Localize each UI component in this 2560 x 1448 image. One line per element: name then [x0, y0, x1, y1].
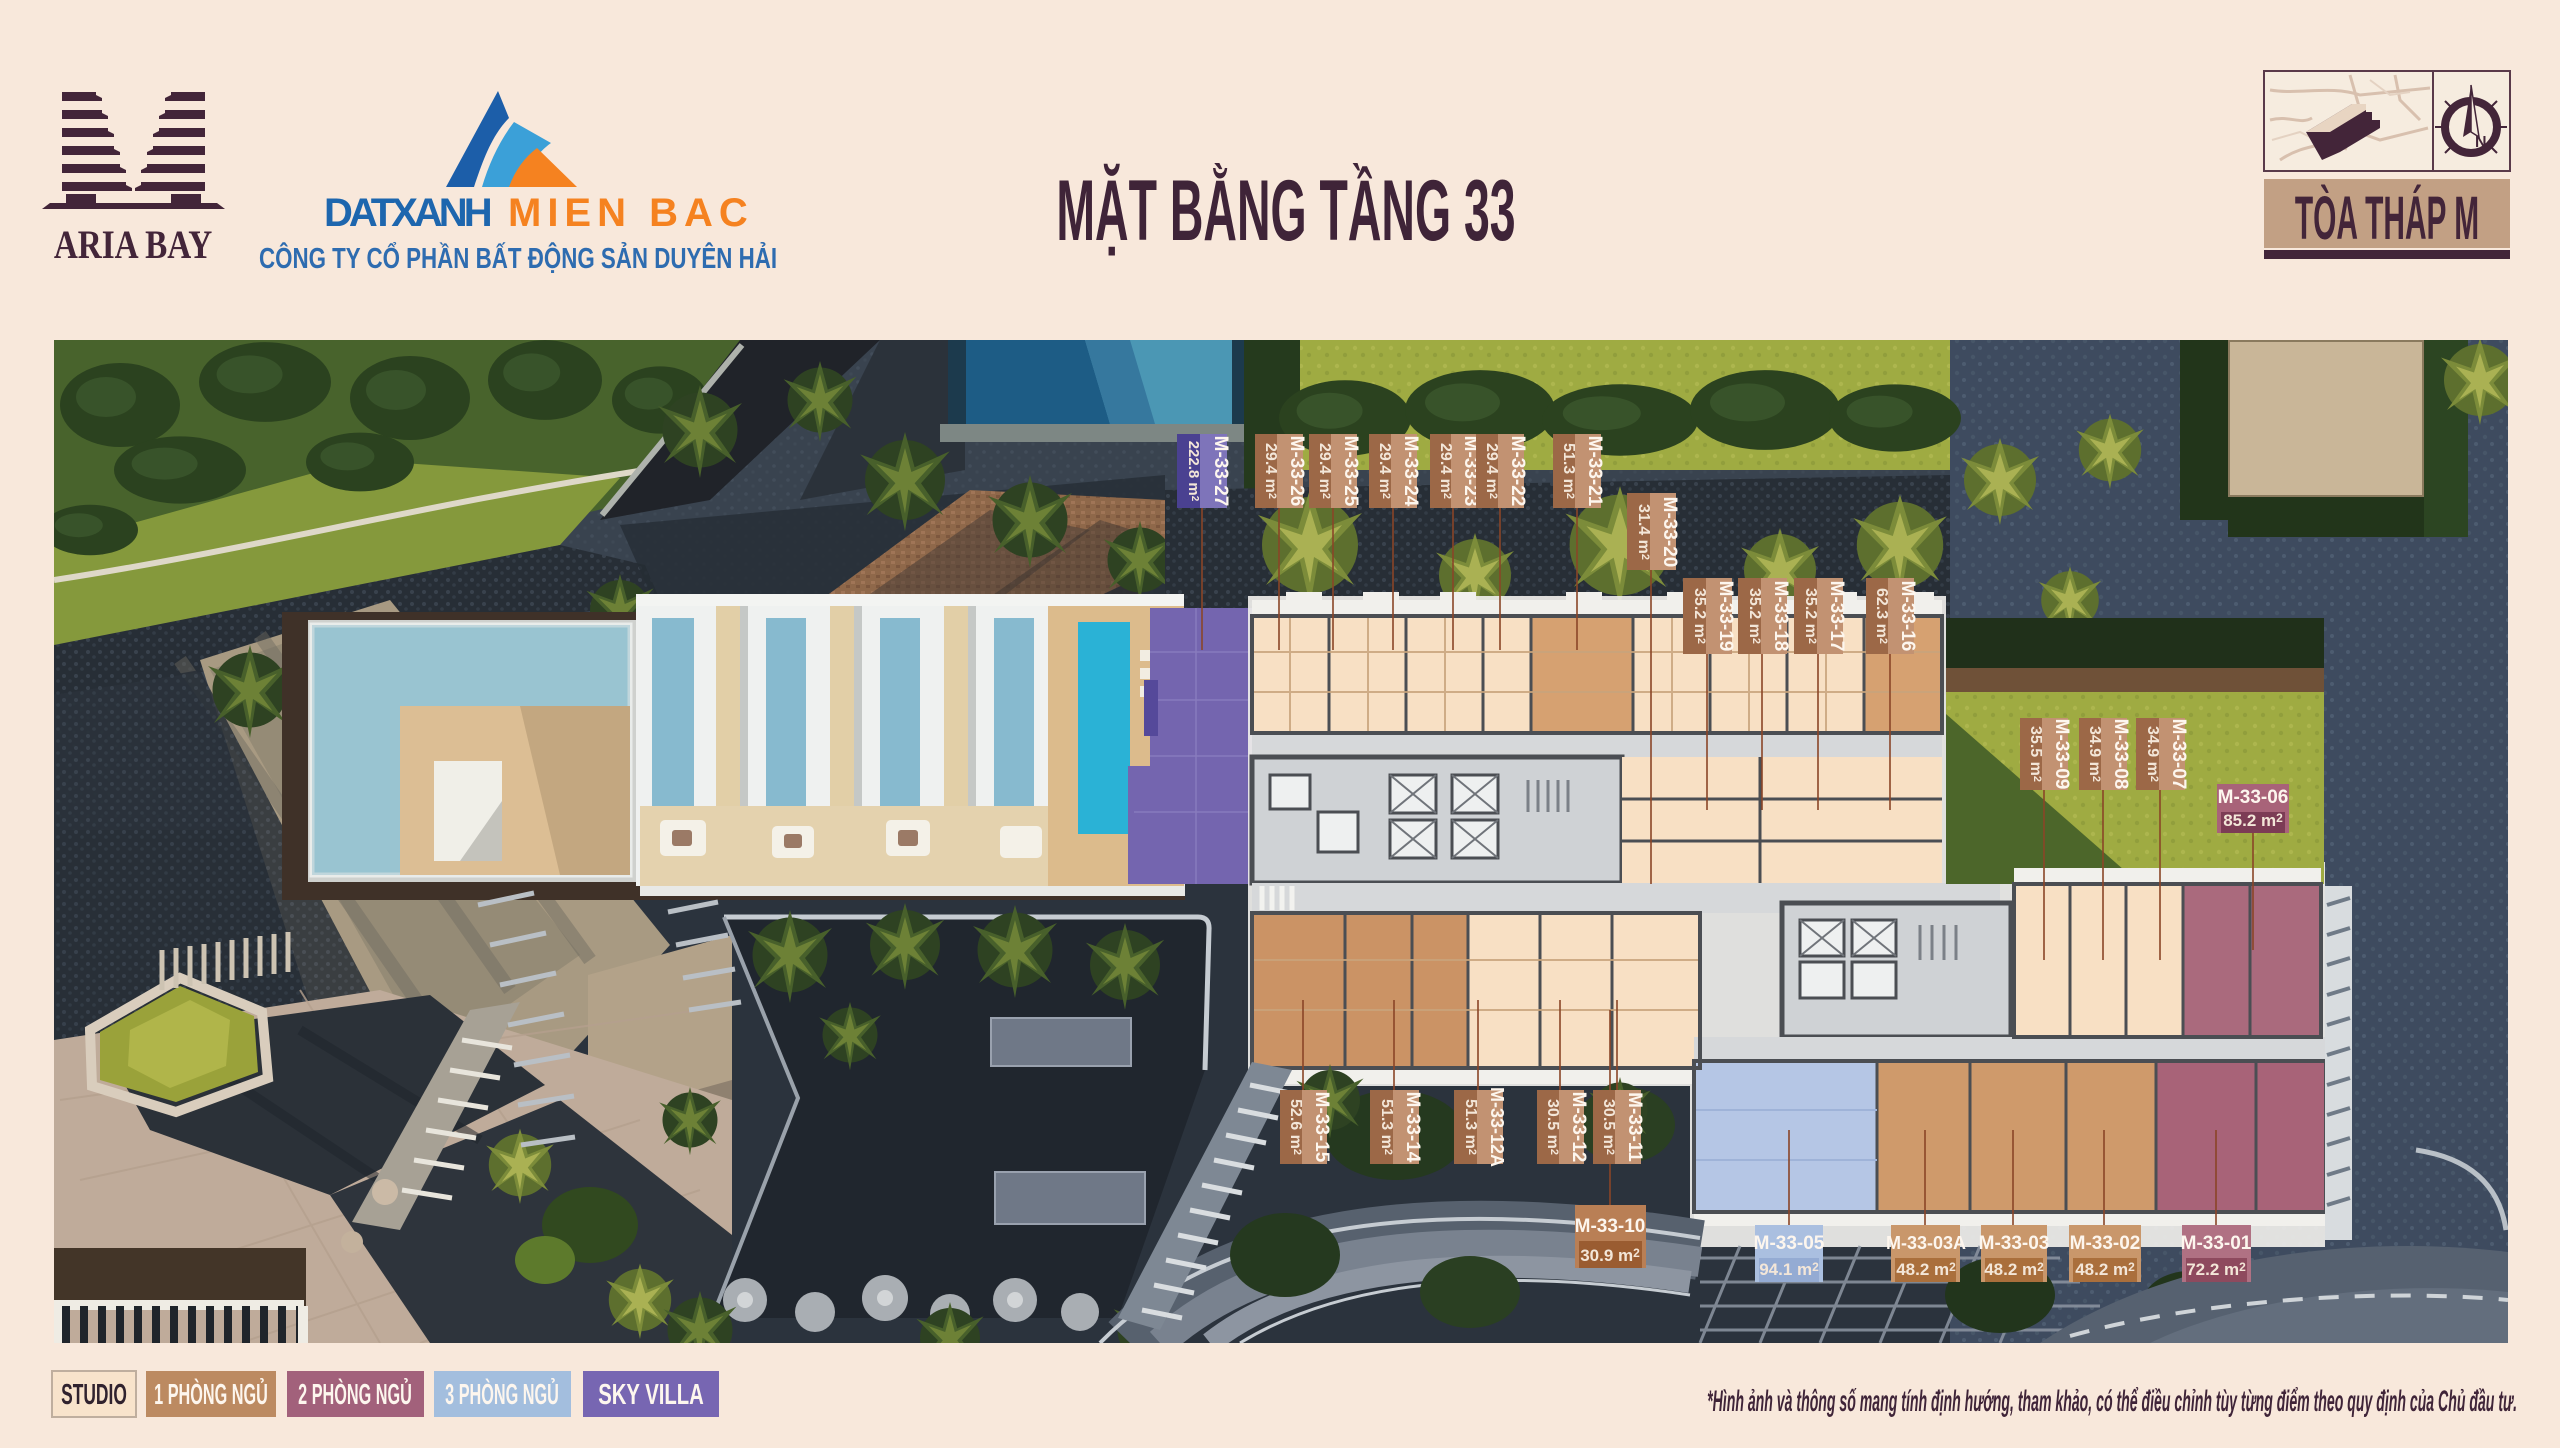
svg-text:TÒA THÁP M: TÒA THÁP M	[2295, 183, 2479, 253]
svg-text:85.2 m2: 85.2 m2	[2223, 811, 2283, 830]
svg-text:1 PHÒNG NGỦ: 1 PHÒNG NGỦ	[154, 1376, 268, 1411]
svg-text:DATXANH: DATXANH	[324, 191, 491, 235]
svg-text:51.3 m2: 51.3 m2	[1462, 1099, 1479, 1155]
svg-text:2 PHÒNG NGỦ: 2 PHÒNG NGỦ	[298, 1376, 412, 1411]
svg-text:M-33-14: M-33-14	[1402, 1092, 1423, 1163]
svg-text:34.9 m2: 34.9 m2	[2144, 726, 2161, 782]
svg-text:M-33-05: M-33-05	[1754, 1233, 1825, 1254]
svg-text:M-33-26: M-33-26	[1286, 436, 1307, 507]
svg-text:M-33-27: M-33-27	[1210, 436, 1231, 507]
svg-text:51.3 m2: 51.3 m2	[1378, 1099, 1395, 1155]
svg-text:48.2 m2: 48.2 m2	[2075, 1260, 2135, 1279]
svg-text:M-33-21: M-33-21	[1584, 436, 1605, 507]
svg-text:ARIA BAY: ARIA BAY	[54, 222, 212, 267]
svg-text:M-33-10: M-33-10	[1575, 1216, 1646, 1237]
svg-text:M-33-02: M-33-02	[2070, 1233, 2141, 1254]
svg-text:M-33-20: M-33-20	[1659, 497, 1680, 568]
svg-text:M-33-09: M-33-09	[2051, 719, 2072, 790]
svg-text:3 PHÒNG NGỦ: 3 PHÒNG NGỦ	[445, 1376, 559, 1411]
svg-text:35.5 m2: 35.5 m2	[2027, 726, 2044, 782]
svg-text:STUDIO: STUDIO	[61, 1379, 127, 1412]
svg-text:M-33-19: M-33-19	[1715, 581, 1736, 652]
svg-text:29.4 m2: 29.4 m2	[1437, 443, 1454, 499]
svg-text:94.1 m2: 94.1 m2	[1759, 1260, 1819, 1279]
svg-text:62.3 m2: 62.3 m2	[1873, 588, 1890, 644]
svg-text:M-33-06: M-33-06	[2218, 787, 2289, 808]
svg-text:30.5 m2: 30.5 m2	[1600, 1099, 1617, 1155]
svg-text:29.4 m2: 29.4 m2	[1376, 443, 1393, 499]
svg-text:MIEN BAC: MIEN BAC	[508, 191, 754, 235]
svg-text:M-33-12A: M-33-12A	[1487, 1087, 1507, 1167]
svg-text:29.4 m2: 29.4 m2	[1262, 443, 1279, 499]
svg-text:M-33-16: M-33-16	[1897, 581, 1918, 652]
svg-text:35.2 m2: 35.2 m2	[1691, 588, 1708, 644]
svg-text:35.2 m2: 35.2 m2	[1802, 588, 1819, 644]
svg-text:M-33-24: M-33-24	[1400, 436, 1421, 507]
svg-text:M-33-01: M-33-01	[2181, 1233, 2252, 1254]
svg-text:M-33-12: M-33-12	[1568, 1092, 1589, 1163]
svg-text:M-33-15: M-33-15	[1311, 1092, 1332, 1163]
svg-text:72.2 m2: 72.2 m2	[2186, 1260, 2246, 1279]
svg-text:52.6 m2: 52.6 m2	[1287, 1099, 1304, 1155]
svg-text:M-33-03: M-33-03	[1979, 1233, 2050, 1254]
svg-text:35.2 m2: 35.2 m2	[1746, 588, 1763, 644]
svg-text:M-33-22: M-33-22	[1507, 436, 1528, 507]
svg-text:51.3 m2: 51.3 m2	[1560, 443, 1577, 499]
svg-text:29.4 m2: 29.4 m2	[1316, 443, 1333, 499]
svg-text:34.9 m2: 34.9 m2	[2086, 726, 2103, 782]
svg-text:48.2 m2: 48.2 m2	[1984, 1260, 2044, 1279]
svg-text:M-33-11: M-33-11	[1624, 1092, 1645, 1162]
svg-text:M-33-25: M-33-25	[1340, 436, 1361, 507]
svg-text:M-33-17: M-33-17	[1826, 581, 1847, 652]
svg-text:222.8 m2: 222.8 m2	[1185, 441, 1202, 502]
svg-text:SKY VILLA: SKY VILLA	[598, 1379, 704, 1411]
svg-text:M-33-07: M-33-07	[2168, 719, 2189, 790]
svg-text:MẶT BẰNG TẦNG 33: MẶT BẰNG TẦNG 33	[1056, 162, 1515, 259]
svg-text:29.4 m2: 29.4 m2	[1483, 443, 1500, 499]
svg-text:30.5 m2: 30.5 m2	[1544, 1099, 1561, 1155]
svg-text:M-33-03A: M-33-03A	[1886, 1233, 1966, 1253]
svg-text:CÔNG TY CỔ PHẦN BẤT ĐỘNG SẢN D: CÔNG TY CỔ PHẦN BẤT ĐỘNG SẢN DUYÊN HẢI	[259, 241, 777, 275]
svg-text:*Hình ảnh và thông số mang tín: *Hình ảnh và thông số mang tính định hướ…	[1707, 1384, 2517, 1417]
svg-text:48.2 m2: 48.2 m2	[1896, 1260, 1956, 1279]
svg-text:M-33-18: M-33-18	[1770, 581, 1791, 652]
svg-text:31.4 m2: 31.4 m2	[1635, 504, 1652, 560]
svg-text:30.9 m2: 30.9 m2	[1580, 1246, 1640, 1265]
svg-text:N: N	[2475, 134, 2487, 151]
svg-text:M-33-08: M-33-08	[2110, 719, 2131, 790]
